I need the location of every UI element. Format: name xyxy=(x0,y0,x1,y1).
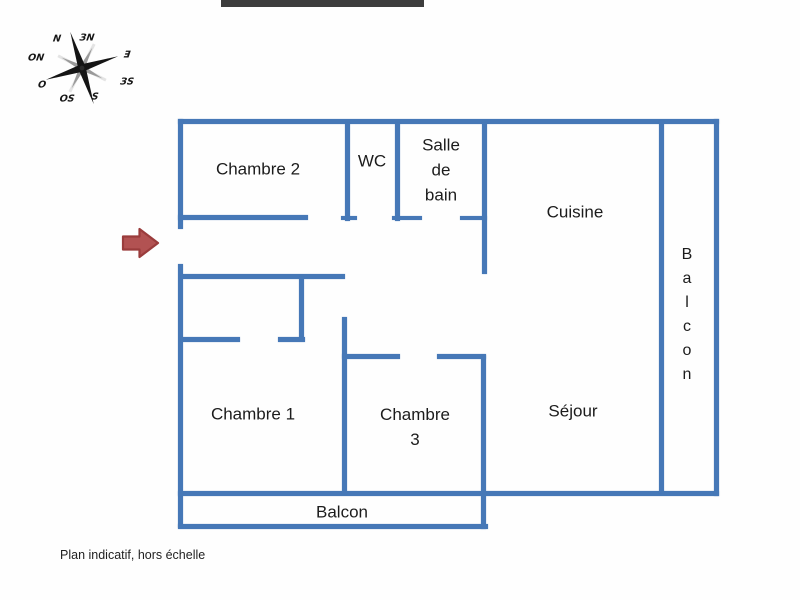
plan-caption: Plan indicatif, hors échelle xyxy=(60,548,205,562)
wall-segment xyxy=(714,119,719,496)
wall-segment xyxy=(278,337,305,342)
wall-segment xyxy=(392,216,422,220)
wall-segment xyxy=(481,355,486,529)
room-label-chambre-3: Chambre3 xyxy=(380,402,450,452)
wall-segment xyxy=(342,317,347,494)
wall-segment xyxy=(437,354,486,359)
room-label-sejour: Séjour xyxy=(548,399,597,424)
wall-segment xyxy=(181,274,345,279)
wall-segment xyxy=(395,123,400,221)
wall-segment xyxy=(659,121,664,493)
room-label-salle-de-bain: Salledebain xyxy=(422,133,460,208)
wall-segment xyxy=(299,277,304,341)
wall-segment xyxy=(342,354,400,359)
wall-segment xyxy=(178,215,308,220)
entrance-arrow-icon xyxy=(121,226,161,260)
wall-segment xyxy=(178,524,488,529)
wall-segment xyxy=(178,119,183,229)
wall-segment xyxy=(345,123,350,221)
room-label-chambre-1: Chambre 1 xyxy=(211,402,295,427)
wall-segment xyxy=(178,264,183,528)
room-label-wc: WC xyxy=(358,149,386,174)
wall-segment xyxy=(482,123,487,274)
floorplan: Chambre 2WCSalledebainCuisineChambre 1Ch… xyxy=(0,0,800,600)
floorplan-image: NЗNƎЗSSOSOON Chambre 2WCSalledebainCuisi… xyxy=(0,0,800,600)
room-label-chambre-2: Chambre 2 xyxy=(216,157,300,182)
room-label-balcon-sud: Balcon xyxy=(316,500,368,525)
wall-segment xyxy=(178,491,719,496)
wall-segment xyxy=(341,216,357,220)
room-label-cuisine: Cuisine xyxy=(547,200,604,225)
wall-segment xyxy=(181,337,240,342)
wall-segment xyxy=(178,119,719,124)
room-label-balcon-est: Balcon xyxy=(682,243,693,387)
